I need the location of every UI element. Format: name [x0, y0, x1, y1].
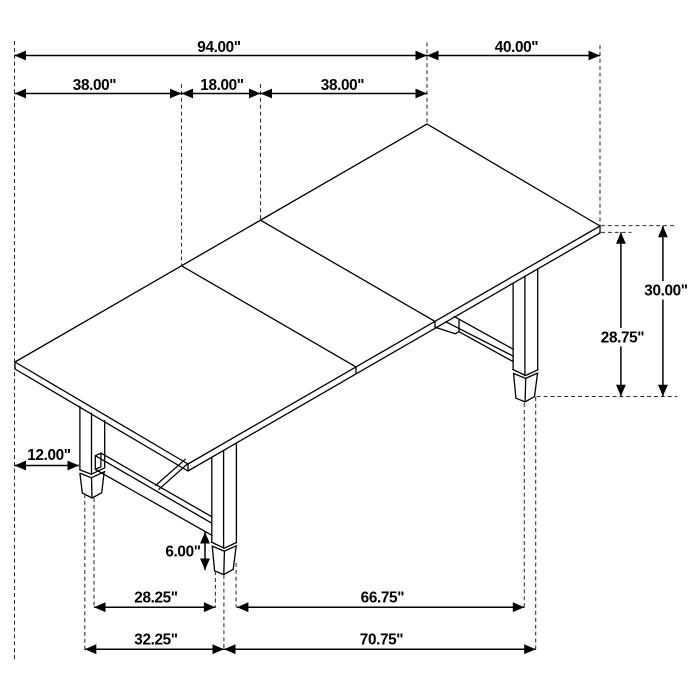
svg-text:28.25": 28.25"	[134, 590, 178, 607]
svg-text:94.00": 94.00"	[197, 39, 241, 56]
svg-text:40.00": 40.00"	[495, 39, 539, 56]
svg-text:32.25": 32.25"	[134, 632, 178, 649]
svg-text:18.00": 18.00"	[200, 77, 244, 94]
svg-text:6.00": 6.00"	[165, 544, 200, 561]
svg-text:66.75": 66.75"	[361, 590, 405, 607]
svg-text:38.00": 38.00"	[73, 77, 117, 94]
svg-text:28.75": 28.75"	[601, 330, 645, 347]
svg-text:12.00": 12.00"	[27, 447, 71, 464]
svg-text:30.00": 30.00"	[644, 283, 688, 300]
svg-text:38.00": 38.00"	[321, 77, 365, 94]
svg-text:70.75": 70.75"	[360, 632, 404, 649]
